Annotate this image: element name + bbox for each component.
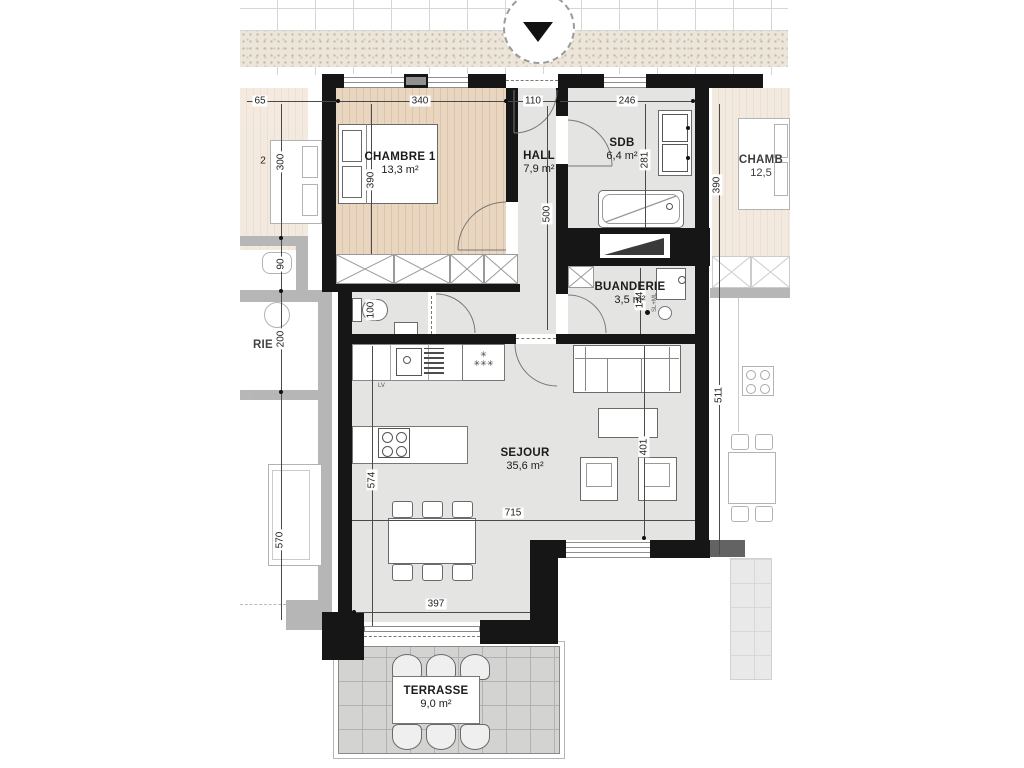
- dim-dot: [279, 390, 283, 394]
- dim-wc-width: 100: [366, 300, 377, 321]
- dim-sejour-width-lower: 397: [426, 599, 447, 610]
- sejour-area: 35,6 m²: [470, 460, 580, 473]
- dim-line-397: [352, 612, 530, 613]
- dim-dot: [556, 99, 560, 103]
- buanderie-label: BUANDERIE: [568, 281, 692, 294]
- dim-sejour-width: 715: [503, 508, 524, 519]
- sejour-label: SEJOUR: [470, 447, 580, 460]
- dim-sejour-depth-right: 401: [639, 437, 650, 458]
- neighbor-left-room-label: RIE: [246, 339, 280, 352]
- dim-neighbor-left-wc: 90: [276, 256, 287, 271]
- neighbor-right-room-label: CHAMB 12,5: [730, 154, 792, 180]
- dim-hall-depth: 500: [542, 204, 553, 225]
- floor-plan: ✳ ✳✳✳ LV SL+ML TERRA: [0, 0, 1024, 768]
- dim-sejour-depth-left: 574: [367, 470, 378, 491]
- dim-dot: [279, 289, 283, 293]
- neighbor-right-room-partial: CHAMB: [730, 154, 792, 167]
- chambre1-area: 13,3 m²: [340, 164, 460, 177]
- dim-hall-width: 110: [523, 96, 543, 107]
- dim-neighbor-left-top: 65: [252, 96, 267, 107]
- dim-neighbor-left-living: 570: [275, 530, 286, 551]
- dim-chambre-width: 340: [410, 96, 431, 107]
- dim-neighbor-right-living: 511: [714, 385, 725, 405]
- hall-area: 7,9 m²: [514, 163, 564, 176]
- chambre1-label: CHAMBRE 1: [340, 151, 460, 164]
- buanderie-label-block: BUANDERIE 3,5 m²: [568, 281, 692, 307]
- dim-dot: [336, 99, 340, 103]
- sdb-label-block: SDB 6,4 m²: [590, 137, 654, 163]
- dim-dot: [352, 610, 356, 614]
- dim-dot: [691, 99, 695, 103]
- sejour-label-block: SEJOUR 35,6 m²: [470, 447, 580, 473]
- dim-line-715: [352, 520, 695, 521]
- dim-sdb-width: 246: [617, 96, 638, 107]
- hall-label: HALL: [514, 150, 564, 163]
- dim-dot: [642, 536, 646, 540]
- dim-dot: [279, 236, 283, 240]
- sdb-label: SDB: [590, 137, 654, 150]
- neighbor-left-room-partial: RIE: [246, 339, 280, 352]
- neighbor-right-room-area: 12,5: [730, 167, 792, 180]
- hall-label-block: HALL 7,9 m²: [514, 150, 564, 176]
- door-arcs: [0, 0, 1024, 768]
- sdb-area: 6,4 m²: [590, 150, 654, 163]
- dim-neighbor-right-bedroom: 390: [712, 175, 723, 196]
- dim-dot: [504, 99, 508, 103]
- buanderie-area: 3,5 m²: [568, 294, 692, 307]
- dim-neighbor-left-bedroom: 300: [276, 152, 287, 173]
- neighbor-left-partial-label: 2: [258, 156, 268, 167]
- dim-line-neighbor-right: [719, 104, 720, 555]
- chambre1-label-block: CHAMBRE 1 13,3 m²: [340, 151, 460, 177]
